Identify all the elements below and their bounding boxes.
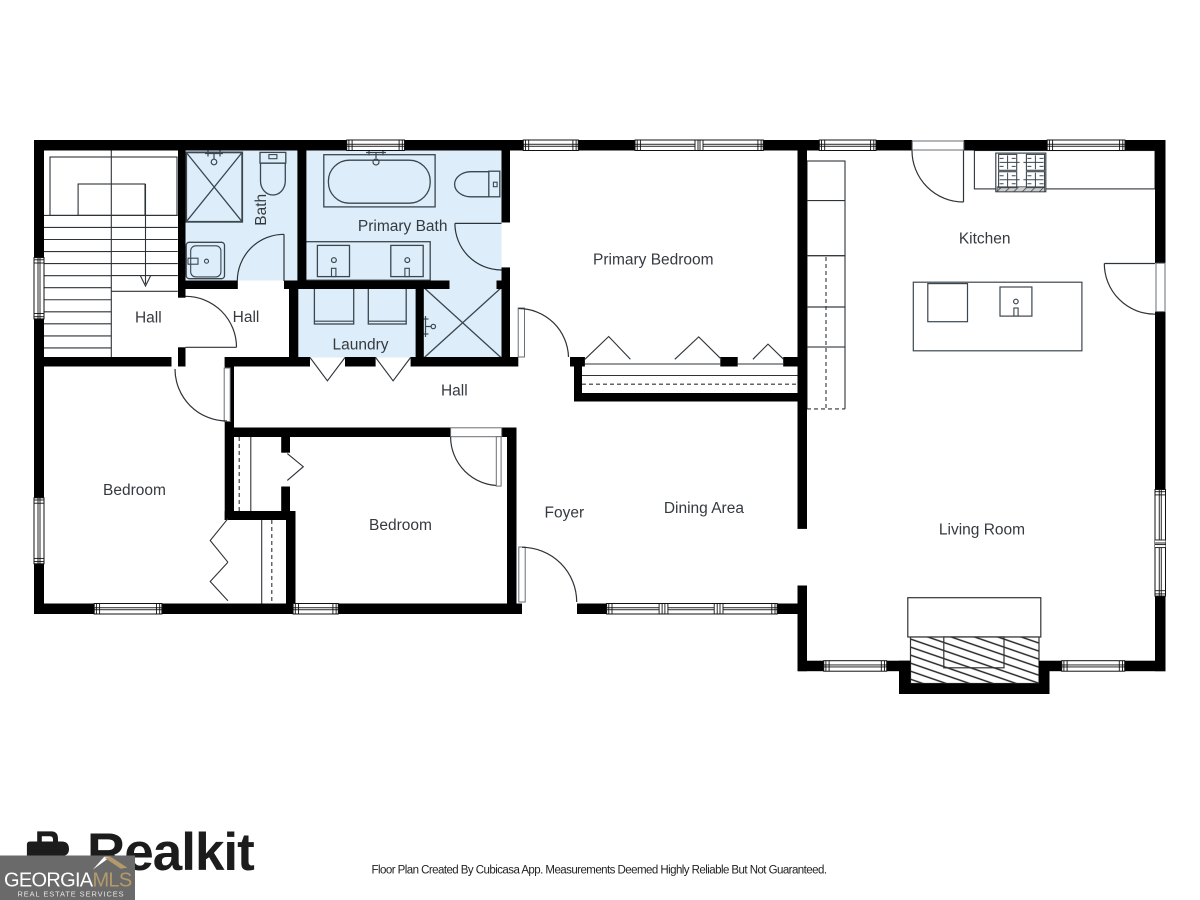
svg-text:Hall: Hall	[135, 309, 162, 326]
svg-text:Hall: Hall	[233, 309, 260, 326]
svg-text:Kitchen: Kitchen	[959, 231, 1011, 248]
svg-text:Living Room: Living Room	[939, 521, 1025, 538]
svg-text:Primary Bath: Primary Bath	[358, 218, 448, 235]
svg-text:Bedroom: Bedroom	[369, 517, 432, 534]
svg-text:Hall: Hall	[441, 383, 468, 400]
svg-text:Bedroom: Bedroom	[103, 482, 166, 499]
svg-text:Primary Bedroom: Primary Bedroom	[593, 252, 714, 269]
svg-text:Bath: Bath	[253, 194, 270, 226]
svg-text:GEORGIAMLS: GEORGIAMLS	[4, 870, 132, 892]
svg-text:Laundry: Laundry	[332, 336, 388, 353]
svg-text:Foyer: Foyer	[544, 504, 584, 521]
svg-text:REAL ESTATE SERVICES: REAL ESTATE SERVICES	[18, 890, 125, 899]
svg-text:Floor Plan Created By Cubicasa: Floor Plan Created By Cubicasa App. Meas…	[372, 865, 827, 877]
svg-text:Dining Area: Dining Area	[664, 500, 745, 517]
